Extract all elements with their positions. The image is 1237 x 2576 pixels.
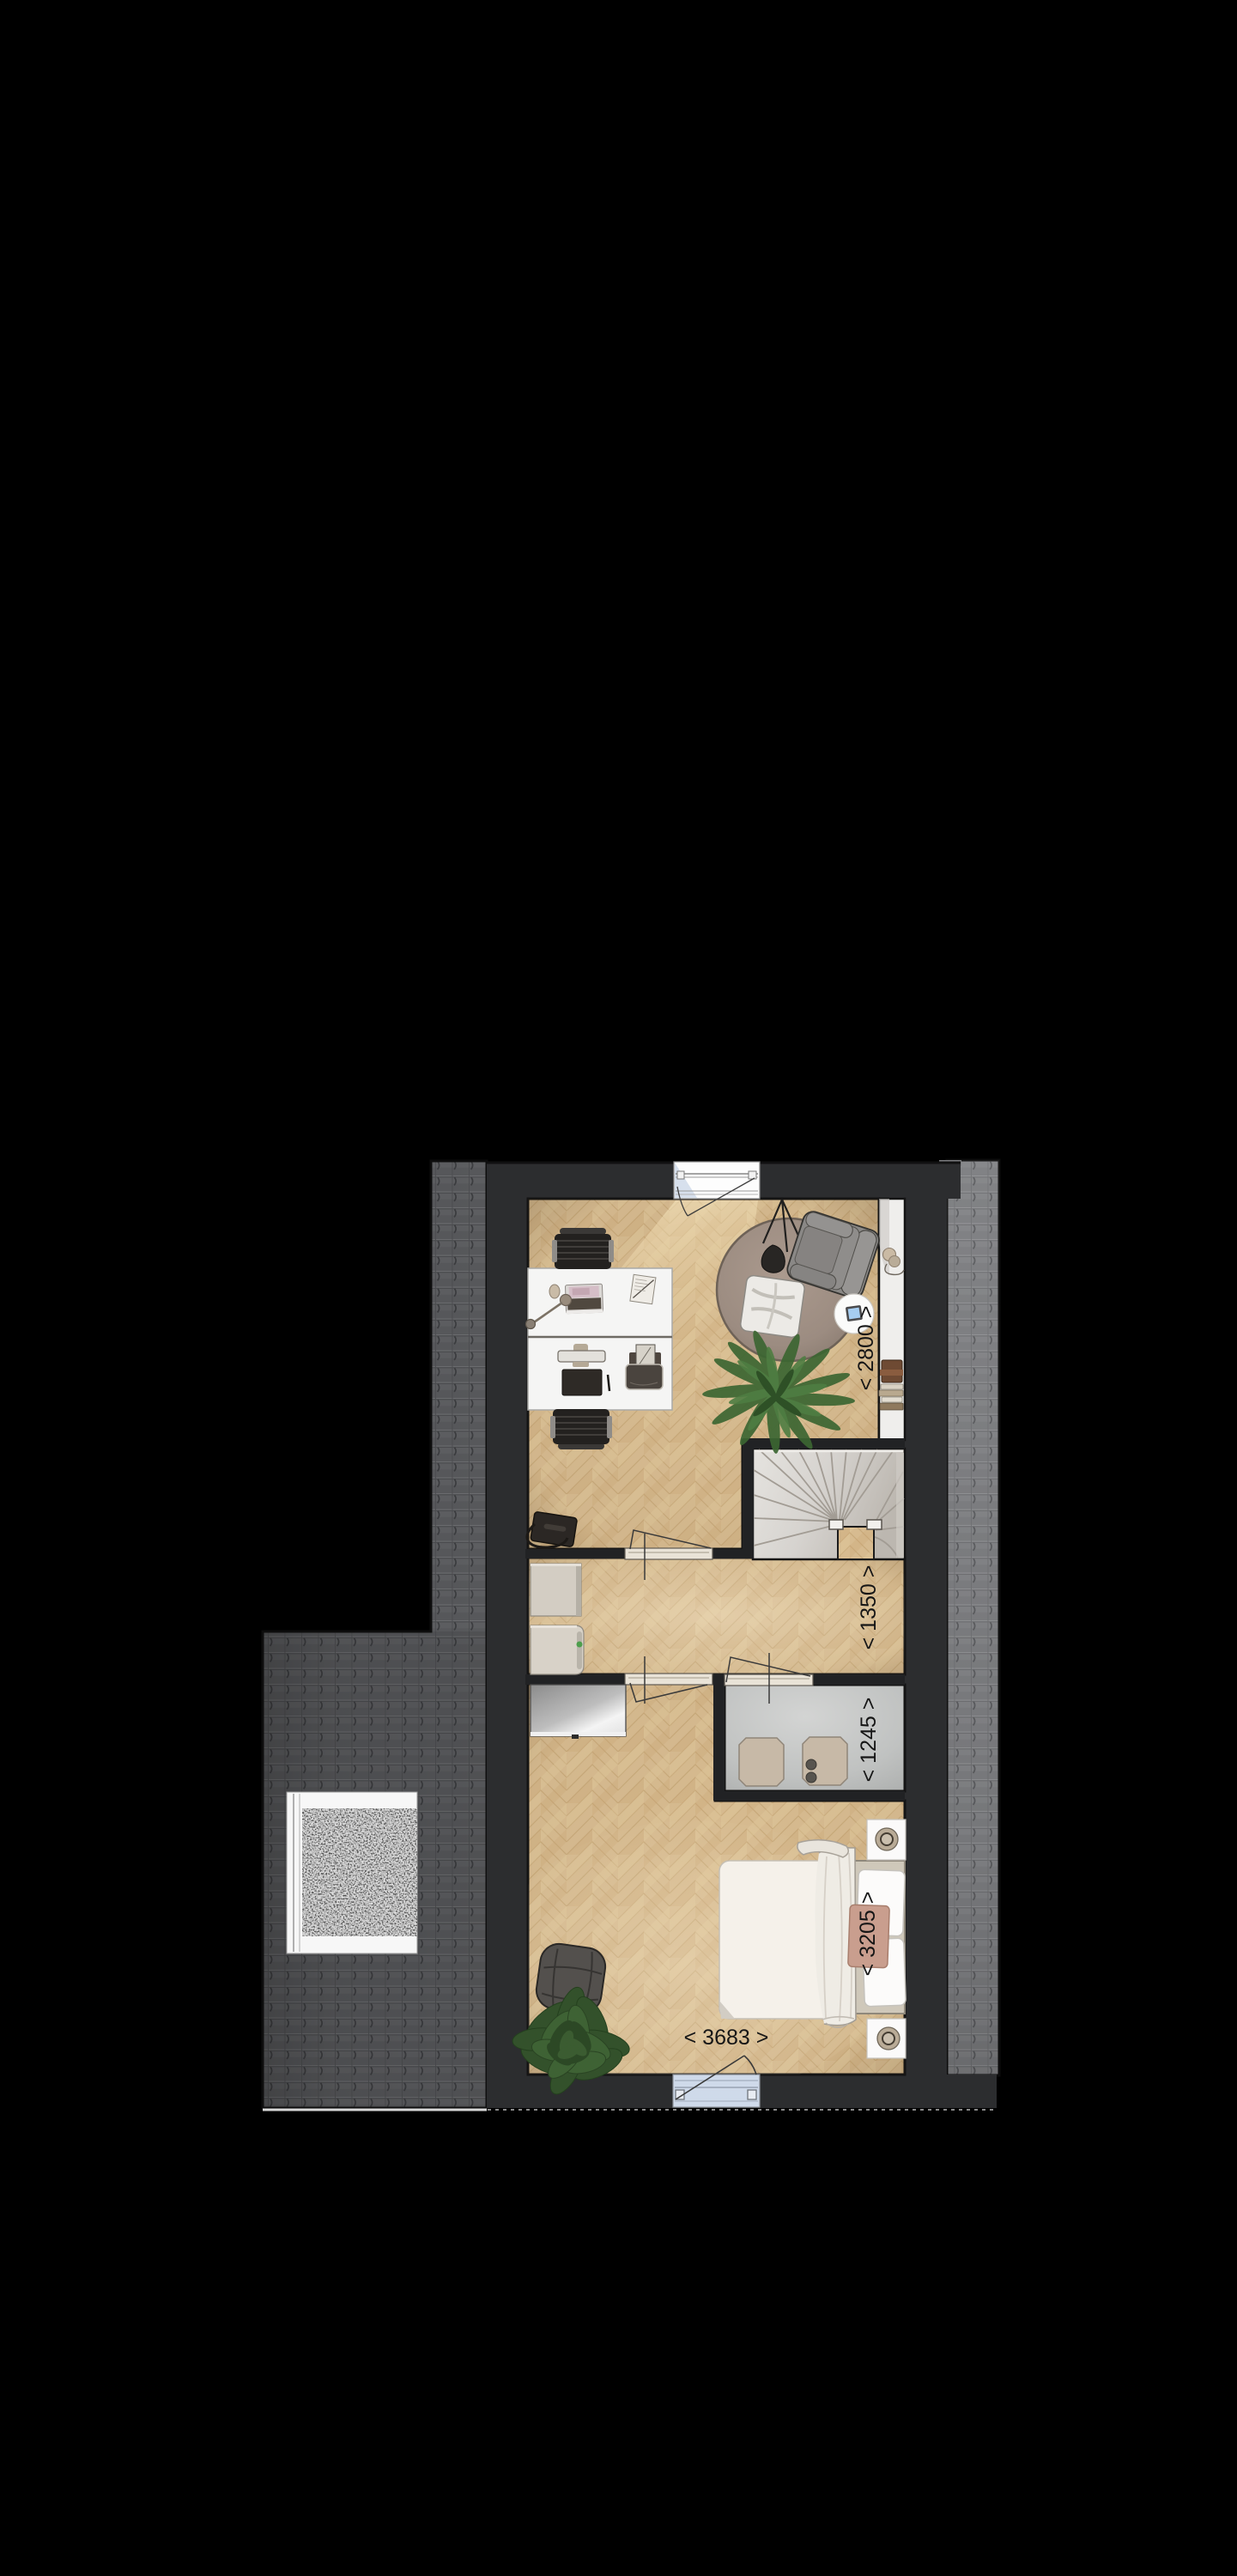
- svg-text:< 1245 >: < 1245 >: [857, 1698, 881, 1783]
- svg-text:< 3683 >: < 3683 >: [684, 2026, 769, 2050]
- svg-text:< 1350 >: < 1350 >: [857, 1565, 881, 1650]
- svg-text:< 2800 >: < 2800 >: [854, 1306, 878, 1391]
- svg-text:< 3205 >: < 3205 >: [856, 1892, 880, 1977]
